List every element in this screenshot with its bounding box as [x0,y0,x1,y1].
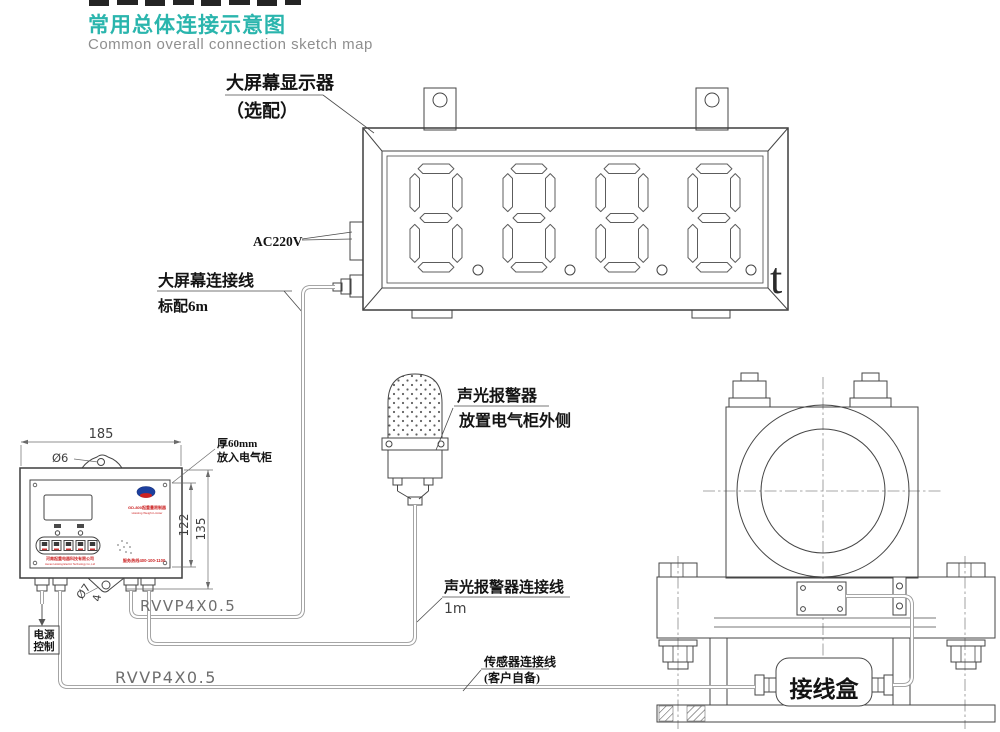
dim-outer-height: 135 [194,518,208,541]
top-bolt-right [850,373,891,407]
brand-logo-icon [137,487,155,498]
alarm-cable-label: 声光报警器连接线 [443,578,564,596]
load-cell-assembly [657,373,995,729]
diagram: t 大屏幕显示器 （选配） AC220V 大屏幕连接线 标配6m [0,0,1000,732]
junction-box-label: 接线盒 [790,676,860,702]
dim-offset: 4 [90,593,104,602]
display-mount-tab-left [424,88,456,130]
cropped-text-top [89,0,301,6]
connection-sketch-page: 常用总体连接示意图 Common overall connection sket… [0,0,1000,732]
indicator-icon-2 [77,524,84,528]
indicator-icon-1 [54,524,61,528]
section-hatch [659,706,673,721]
alarm-label-2: 放置电气柜外侧 [458,411,571,430]
power-control-line1: 电源 [34,628,55,641]
display-digits [410,164,740,272]
panel-hotline: 服务热线400-100-1100 [123,557,166,564]
speaker-grill-icon [117,540,132,554]
display-cable-label-1: 大屏幕连接线 [158,271,254,290]
sensor-junction-plate [797,582,846,615]
panel-company-cn: 河南起重电器科技有限公司 [46,555,94,561]
controller-box: GD-800起重量限制器 Hoisting Weight Limiter 河南起… [20,455,182,592]
power-control-line2: 控制 [34,640,55,653]
display-label-1: 大屏幕显示器 [226,72,335,93]
display-mount-hole-left [433,93,447,107]
panel-buttons[interactable] [40,541,97,551]
dim-width: 185 [89,427,114,442]
alarm-dome [388,374,442,438]
display-signal-terminal [350,275,363,297]
dim-hole-top: Ø6 [52,451,68,465]
controller-bottom-hole [102,581,110,589]
load-cell-block [726,407,918,578]
sensor-cable-label-1: 传感器连接线 [483,654,556,669]
arrow-down-icon [39,619,46,626]
display-cable-label-2: 标配6m [157,297,209,315]
controller-top-tab [82,455,122,468]
display-mount-tab-right [696,88,728,130]
rvvp-label-sensor: RVVP4X0.5 [115,668,217,687]
indicator-lamp-1 [55,531,59,535]
controller-lcd [44,495,92,520]
thickness-note-1: 厚60mm [217,437,257,450]
display-label-2: （选配） [226,101,298,121]
alarm-beacon [382,374,448,505]
indicator-lamp-2 [78,531,82,535]
plate-bolts [659,563,985,669]
power-label: AC220V [253,234,303,249]
base-beam [657,705,995,722]
top-bolt-left [729,373,770,407]
controller-top-hole [98,459,105,466]
sensor-cable-label-2: (客户自备) [484,670,540,685]
panel-model-cn: GD-800起重量限制器 [128,504,167,510]
panel-company-en: Henan Hoisting Electric Technology Co.,L… [45,562,95,566]
display-mount-hole-right [705,93,719,107]
rvvp-label-screen: RVVP4X0.5 [140,597,236,615]
display-unit: t [770,254,782,303]
thickness-note-2: 放入电气柜 [216,450,272,464]
alarm-cable-length: 1m [444,601,467,617]
panel-model-en: Hoisting Weight Limiter [132,511,163,515]
dim-inner-height: 122 [177,514,191,537]
section-hatch [687,706,705,721]
alarm-base [388,450,442,478]
display-power-terminal [350,222,363,260]
big-display: t [333,88,788,318]
alarm-label-1: 声光报警器 [456,386,538,405]
display-screen [382,151,768,288]
